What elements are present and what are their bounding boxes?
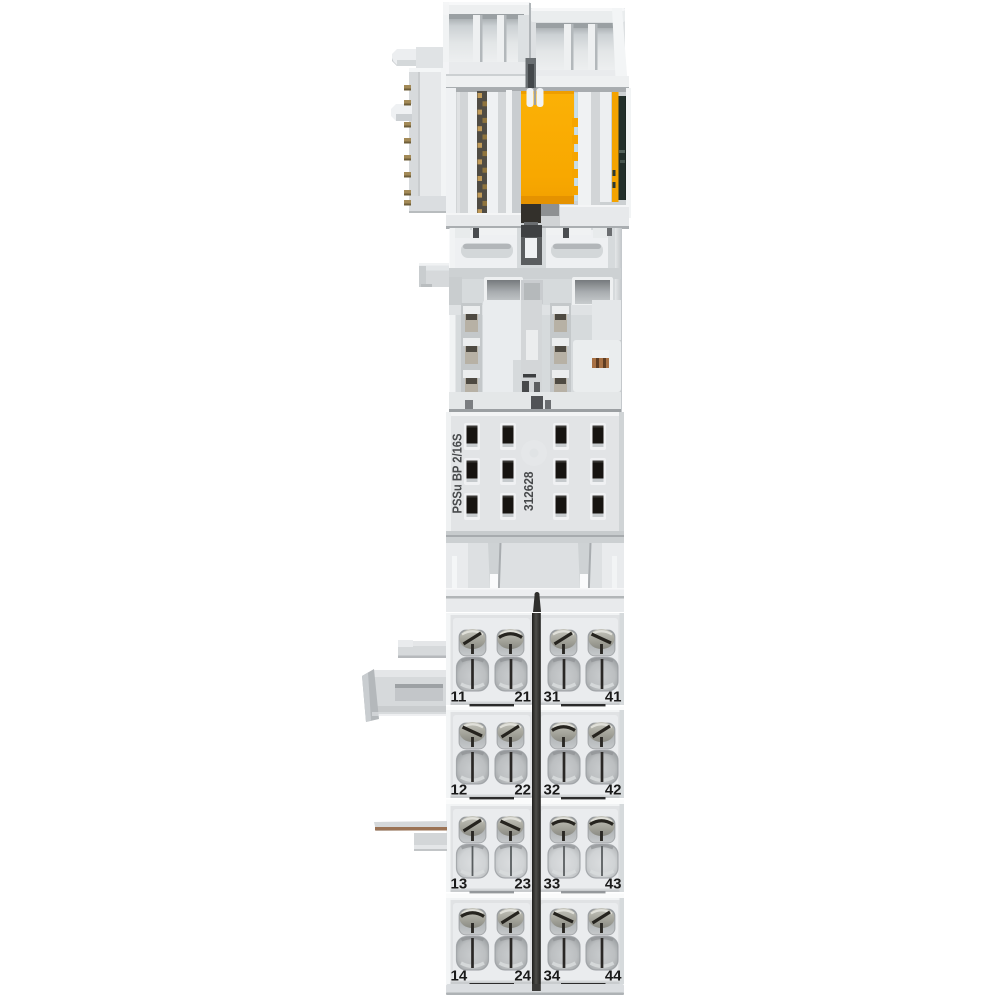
svg-text:312628: 312628 [521, 472, 536, 512]
svg-text:24: 24 [514, 968, 531, 985]
svg-text:34: 34 [544, 968, 561, 985]
svg-text:23: 23 [514, 876, 531, 893]
svg-text:32: 32 [544, 782, 561, 799]
svg-text:12: 12 [451, 782, 468, 799]
svg-text:21: 21 [514, 689, 531, 706]
svg-text:42: 42 [605, 782, 622, 799]
svg-text:13: 13 [451, 876, 468, 893]
svg-text:PSSu BP 2/16S: PSSu BP 2/16S [449, 433, 464, 513]
svg-text:22: 22 [514, 782, 531, 799]
svg-text:11: 11 [451, 689, 467, 706]
svg-text:31: 31 [544, 689, 561, 706]
svg-text:43: 43 [605, 876, 622, 893]
svg-text:41: 41 [605, 689, 622, 706]
svg-text:33: 33 [544, 876, 561, 893]
svg-text:44: 44 [605, 968, 622, 985]
svg-text:14: 14 [451, 968, 468, 985]
